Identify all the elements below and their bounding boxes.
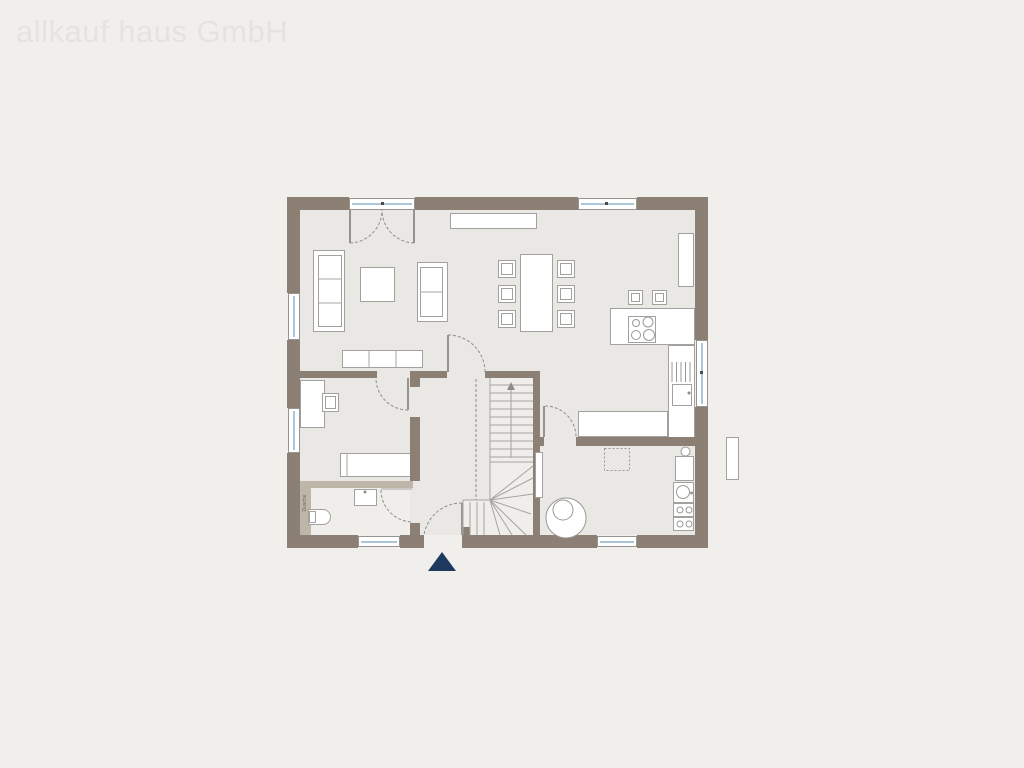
entrance-door-arc [424,503,462,535]
kitchen-faucet-dot [688,392,691,395]
sideboard-divider-lines [369,351,396,367]
french-door-arc-right [382,210,414,243]
water-heater [546,498,586,538]
sofa-cushion-lines [318,279,443,303]
bath-faucet-dot [364,491,367,494]
door-swing-arcs [350,210,576,535]
entrance-marker-icon [428,552,456,571]
stair-up-arrow-icon [507,382,515,390]
living-hall-door-arc [448,335,485,372]
bath-door-arc [381,490,413,522]
utility-fixture-details [677,447,693,527]
cooktop-burners [632,317,655,341]
french-door-arc-left [350,210,382,243]
floorplan-page: allkauf haus GmbH [0,0,1024,768]
plan-linework [0,0,1024,768]
office-door-arc [376,378,408,410]
utility-door-arc [545,406,576,437]
planned-appliance-outline [605,449,630,471]
stair-entry-steps [463,500,490,535]
stair-winders [490,466,533,535]
sink-drainer-lines [672,362,690,382]
